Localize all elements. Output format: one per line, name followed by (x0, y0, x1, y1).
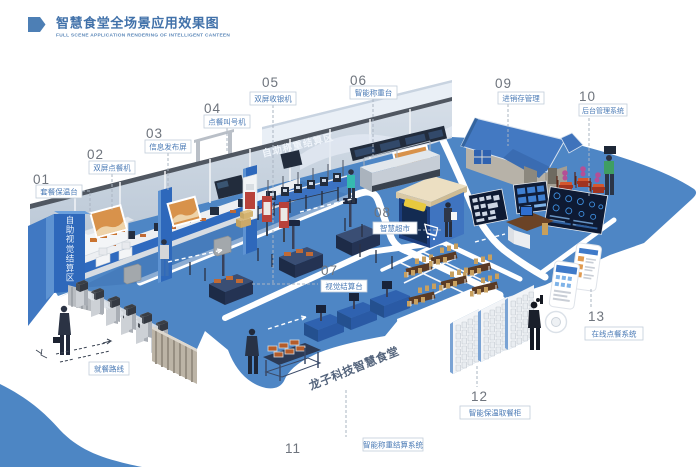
svg-text:10: 10 (579, 89, 596, 104)
svg-text:结: 结 (66, 253, 75, 263)
svg-text:02: 02 (87, 147, 104, 162)
svg-text:11: 11 (285, 441, 301, 456)
svg-text:13: 13 (588, 309, 605, 324)
svg-text:08: 08 (374, 205, 391, 220)
svg-text:05: 05 (262, 75, 279, 90)
svg-text:03: 03 (146, 126, 163, 141)
svg-text:双屏点餐机: 双屏点餐机 (93, 162, 131, 172)
svg-text:自: 自 (66, 215, 75, 225)
svg-text:视: 视 (66, 234, 75, 244)
svg-text:07: 07 (321, 263, 338, 278)
svg-text:智慧食堂全场景应用效果图: 智慧食堂全场景应用效果图 (56, 16, 219, 31)
svg-text:09: 09 (495, 76, 512, 91)
svg-text:套餐保温台: 套餐保温台 (40, 186, 78, 196)
svg-text:进销存管理: 进销存管理 (502, 93, 540, 103)
svg-text:觉: 觉 (66, 244, 75, 254)
svg-text:智能称重结算系统: 智能称重结算系统 (363, 439, 423, 449)
svg-text:助: 助 (66, 225, 75, 235)
svg-text:在线点餐系统: 在线点餐系统 (592, 328, 637, 338)
svg-text:区: 区 (66, 273, 75, 283)
svg-text:智能保温取餐柜: 智能保温取餐柜 (469, 407, 522, 417)
svg-text:点餐叫号机: 点餐叫号机 (208, 116, 246, 126)
svg-text:智能称重台: 智能称重台 (355, 87, 393, 97)
svg-text:视觉结算台: 视觉结算台 (325, 281, 363, 291)
svg-text:就餐路线: 就餐路线 (94, 363, 124, 373)
svg-text:智慧超市: 智慧超市 (380, 223, 410, 233)
svg-text:双屏收银机: 双屏收银机 (254, 93, 292, 103)
svg-text:算: 算 (66, 263, 75, 273)
svg-text:04: 04 (204, 101, 221, 116)
svg-text:12: 12 (471, 389, 488, 404)
svg-text:FULL SCENE APPLICATION RENDERI: FULL SCENE APPLICATION RENDERING OF INTE… (56, 33, 230, 39)
svg-text:后台管理系统: 后台管理系统 (582, 106, 624, 115)
svg-text:信息发布屏: 信息发布屏 (149, 141, 187, 151)
